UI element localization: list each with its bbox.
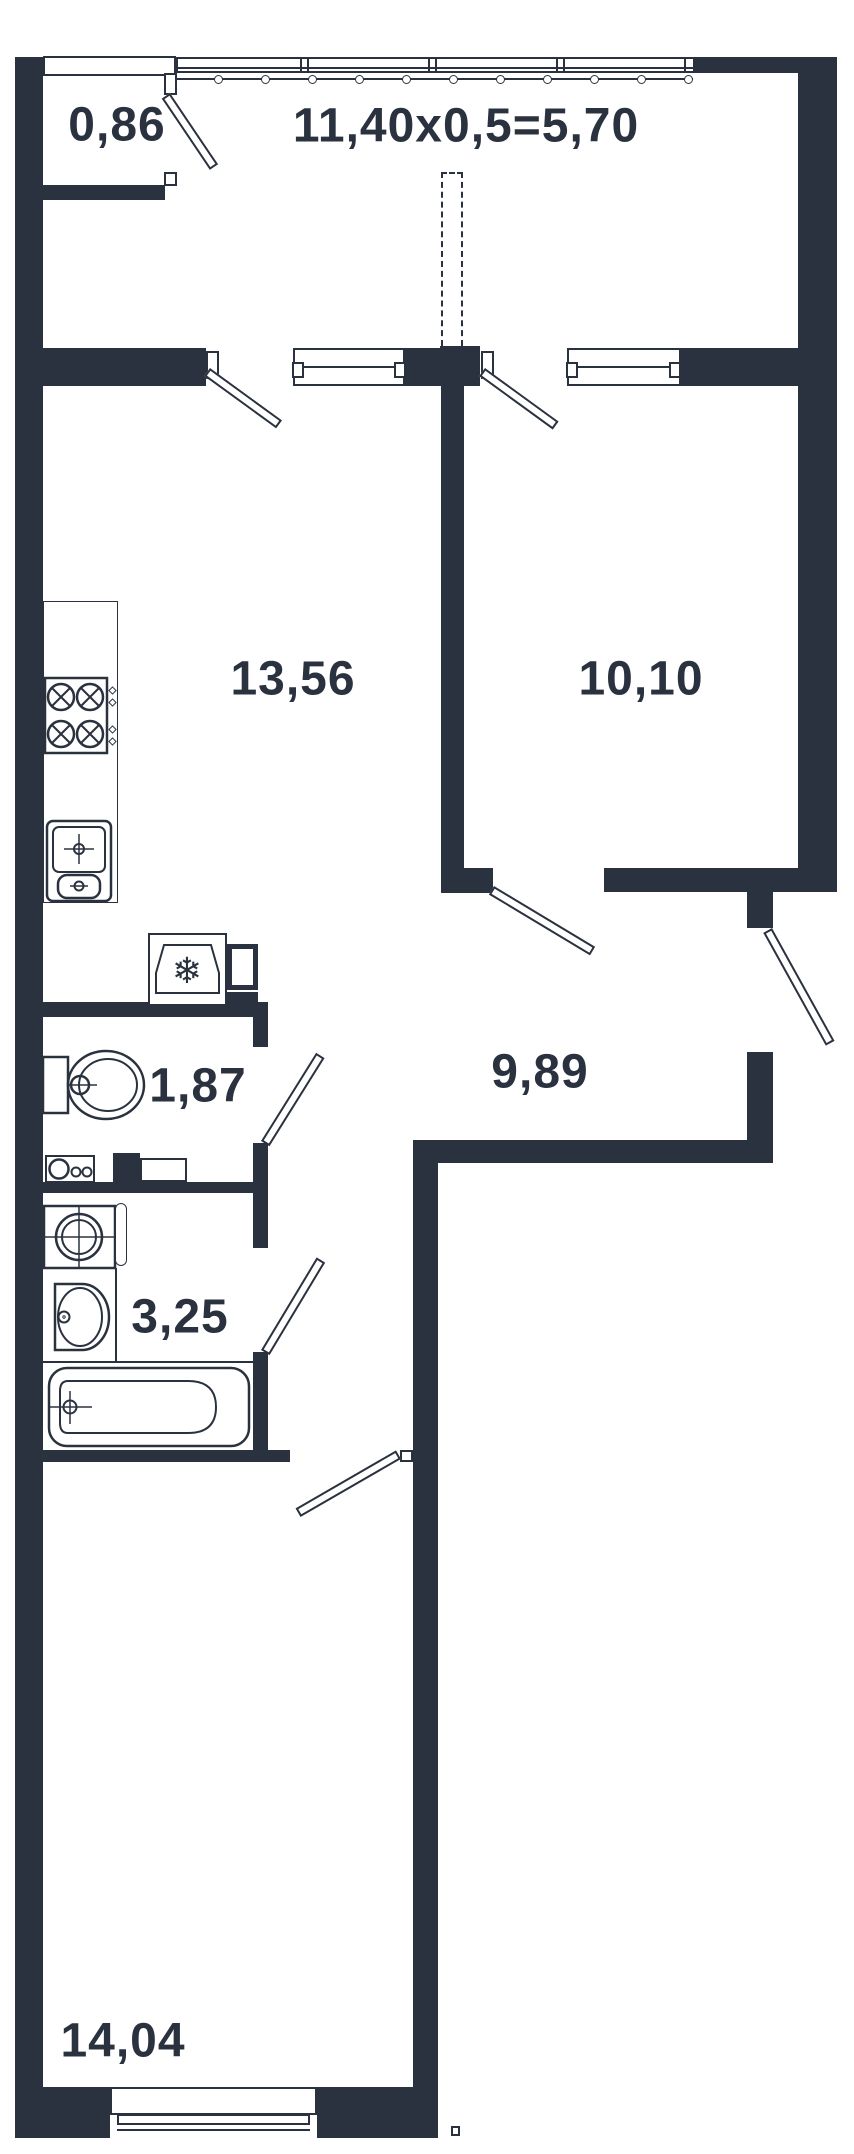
wall-kitchen-bedroom: [441, 386, 464, 868]
railing-baluster: [543, 75, 552, 84]
wall-corridor-south: [413, 1140, 773, 1163]
stove-icon: [44, 677, 118, 754]
room-label-bedroom: 10,10: [578, 652, 703, 707]
railing-baluster: [355, 75, 364, 84]
balcony-thin-wall: [43, 56, 176, 76]
window-room: [110, 2087, 317, 2115]
wall-bottom-left: [15, 2087, 110, 2138]
railing-post: [428, 57, 430, 73]
window-jamb: [566, 362, 578, 378]
wall: [681, 348, 798, 386]
railing-baluster: [449, 75, 458, 84]
door-swing-kitchen-balcony: [204, 368, 282, 428]
window-sill: [117, 2114, 310, 2125]
dimension-mark: [451, 2126, 460, 2136]
bath-partition-line-h: [43, 1361, 253, 1363]
room-label-bathroom: 3,25: [131, 1290, 228, 1345]
wc-shelf-icon: [45, 1155, 95, 1183]
wall-bedroom-south: [604, 868, 837, 892]
wall-bath-east: [253, 1352, 268, 1450]
wall-room-east: [413, 1163, 438, 2087]
fridge-side-block-inner: [232, 949, 253, 985]
room-label-room: 14,04: [60, 2014, 185, 2069]
washbasin-icon: [52, 1282, 110, 1352]
railing-baluster: [402, 75, 411, 84]
wall-balcony-section: [43, 185, 165, 200]
window-jamb: [669, 362, 681, 378]
wall: [405, 348, 441, 386]
toilet-icon: [42, 1040, 147, 1122]
balcony-area-label: 0,86: [68, 98, 165, 153]
room-label-wc: 1,87: [149, 1059, 246, 1114]
door-swing-bedroom-balcony: [479, 368, 558, 430]
railing-baluster: [261, 75, 270, 84]
door-swing-entrance: [763, 928, 834, 1046]
washing-machine-icon: [43, 1205, 116, 1269]
window-frame-line: [295, 366, 403, 368]
dashed-partition: [441, 172, 463, 346]
railing-baluster: [214, 75, 223, 84]
wall-entrance-pillar-bottom: [747, 1052, 773, 1140]
railing-baluster-line: [176, 78, 693, 80]
window-sill-line: [117, 2129, 310, 2131]
room-label-kitchen-living: 13,56: [230, 652, 355, 707]
door-swing-balcony-section: [162, 93, 218, 170]
wall-entrance-pillar-top: [747, 892, 773, 928]
towel-rail: [115, 1203, 127, 1266]
railing-baluster: [590, 75, 599, 84]
wall-bath-south: [15, 1450, 290, 1462]
balcony-formula-label: 11,40x0,5=5,70: [293, 99, 639, 154]
wall-wc-bath-partition: [15, 1182, 268, 1193]
floor-plan: ❄ 0,86 11,40: [0, 0, 854, 2154]
window-frame-line: [569, 366, 679, 368]
wall-wc-east: [253, 1017, 268, 1047]
railing-baluster: [496, 75, 505, 84]
wall-pillar: [440, 346, 480, 386]
wall-foot: [441, 868, 493, 893]
sink-icon: [46, 820, 112, 903]
railing-baluster: [637, 75, 646, 84]
fridge-side-block-lower: [227, 992, 258, 1005]
door-jamb: [400, 1450, 413, 1462]
railing-post: [307, 57, 309, 73]
wall-right: [798, 57, 837, 892]
railing-post: [300, 57, 302, 73]
wall-wc-east-lower: [253, 1143, 268, 1248]
duct-block: [113, 1153, 140, 1182]
door-jamb: [164, 73, 177, 95]
railing-post: [556, 57, 558, 73]
door-swing-bathroom: [261, 1257, 325, 1355]
door-swing-wc: [261, 1053, 325, 1146]
bath-partition-line-v: [115, 1268, 117, 1363]
railing-post: [684, 57, 686, 73]
room-label-hallway: 9,89: [491, 1045, 588, 1100]
wall-bottom-right: [317, 2087, 438, 2138]
railing-post: [435, 57, 437, 73]
railing-baluster: [308, 75, 317, 84]
door-swing-room: [296, 1450, 401, 1517]
railing-post: [563, 57, 565, 73]
door-jamb: [164, 172, 177, 186]
bathtub-icon: [48, 1367, 250, 1447]
railing-baluster: [684, 75, 693, 84]
wall: [15, 348, 206, 386]
snowflake-icon: ❄: [172, 950, 202, 992]
door-swing-bedroom: [489, 886, 595, 955]
window-jamb: [292, 362, 304, 378]
duct-panel: [140, 1158, 187, 1182]
